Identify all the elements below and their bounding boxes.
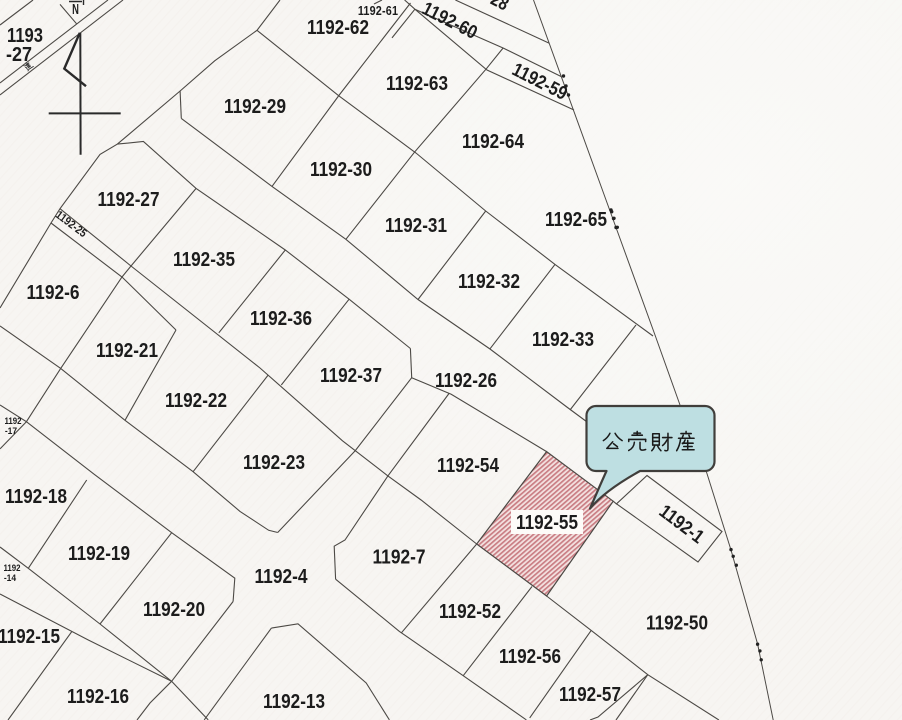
svg-text:1192-4: 1192-4 <box>255 566 309 588</box>
svg-text:-17: -17 <box>5 426 17 437</box>
svg-text:1192-23: 1192-23 <box>243 452 305 474</box>
svg-text:1192-32: 1192-32 <box>458 271 520 293</box>
svg-text:1192-6: 1192-6 <box>27 282 80 304</box>
svg-text:N: N <box>72 1 79 18</box>
svg-text:-27: -27 <box>6 44 32 66</box>
svg-text:1192-29: 1192-29 <box>224 96 286 118</box>
svg-text:1192-52: 1192-52 <box>439 601 501 623</box>
svg-text:1192-16: 1192-16 <box>67 686 129 708</box>
svg-text:1192-22: 1192-22 <box>165 390 227 412</box>
svg-text:1192-63: 1192-63 <box>386 73 448 95</box>
svg-text:1192-64: 1192-64 <box>462 131 525 153</box>
svg-text:1192-61: 1192-61 <box>358 3 398 18</box>
svg-text:1192-19: 1192-19 <box>68 543 130 565</box>
svg-text:1192-36: 1192-36 <box>250 308 312 330</box>
svg-text:1192-56: 1192-56 <box>499 646 561 668</box>
svg-text:1192-65: 1192-65 <box>545 209 607 231</box>
svg-text:1192-50: 1192-50 <box>646 613 708 635</box>
svg-text:1192-37: 1192-37 <box>320 365 382 387</box>
svg-text:1192-31: 1192-31 <box>385 215 447 237</box>
svg-text:1192-27: 1192-27 <box>98 189 160 211</box>
svg-text:1192-57: 1192-57 <box>559 684 621 706</box>
svg-text:1192-30: 1192-30 <box>310 159 372 181</box>
svg-text:-14: -14 <box>4 573 17 584</box>
svg-text:1192-7: 1192-7 <box>373 547 426 569</box>
svg-text:1192-62: 1192-62 <box>307 17 369 39</box>
svg-text:1192-21: 1192-21 <box>96 340 158 362</box>
svg-text:1192-18: 1192-18 <box>5 486 67 508</box>
svg-text:1192-26: 1192-26 <box>435 370 497 392</box>
svg-text:1192-55: 1192-55 <box>516 512 578 534</box>
svg-text:1192-33: 1192-33 <box>532 329 594 351</box>
svg-text:1192-13: 1192-13 <box>263 691 325 713</box>
svg-text:1192-54: 1192-54 <box>437 455 500 477</box>
svg-text:1192-15: 1192-15 <box>0 626 60 648</box>
svg-text:1192-20: 1192-20 <box>143 599 205 621</box>
svg-text:1192-35: 1192-35 <box>173 249 235 271</box>
